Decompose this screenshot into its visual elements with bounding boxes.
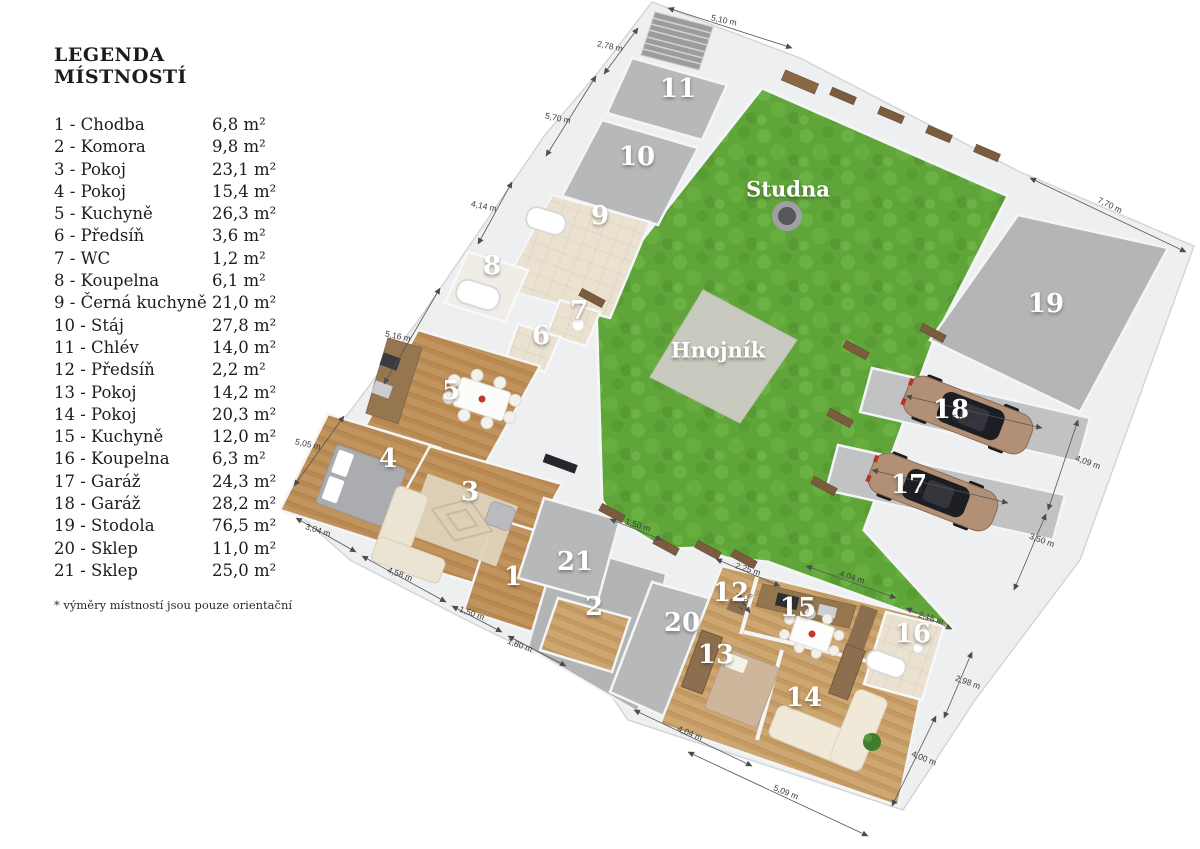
legend-item-area: 12,0 m²: [212, 426, 288, 448]
legend-item: 21 - Sklep25,0 m²: [54, 560, 288, 582]
legend-item-area: 27,8 m²: [212, 315, 288, 337]
legend-item-area: 25,0 m²: [212, 560, 288, 582]
legend-item: 9 - Černá kuchyně21,0 m²: [54, 292, 288, 314]
legend-item-area: 6,1 m²: [212, 270, 288, 292]
legend-footnote: * výměry místností jsou pouze orientační: [54, 598, 304, 612]
legend-item-name: 8 - Koupelna: [54, 270, 212, 292]
legend-item: 18 - Garáž28,2 m²: [54, 493, 288, 515]
well-icon: [775, 204, 799, 228]
legend-item: 15 - Kuchyně12,0 m²: [54, 426, 288, 448]
legend-item-area: 3,6 m²: [212, 225, 288, 247]
legend-item: 13 - Pokoj14,2 m²: [54, 382, 288, 404]
legend-item-area: 11,0 m²: [212, 538, 288, 560]
legend-item-name: 9 - Černá kuchyně: [54, 292, 212, 314]
legend-item-name: 7 - WC: [54, 248, 212, 270]
legend-item-name: 2 - Komora: [54, 136, 212, 158]
legend-item: 12 - Předsíň2,2 m²: [54, 359, 288, 381]
legend-item-area: 28,2 m²: [212, 493, 288, 515]
legend-item-name: 5 - Kuchyně: [54, 203, 212, 225]
legend-item-area: 24,3 m²: [212, 471, 288, 493]
legend-item-name: 14 - Pokoj: [54, 404, 212, 426]
legend-item: 8 - Koupelna6,1 m²: [54, 270, 288, 292]
legend-item: 11 - Chlév14,0 m²: [54, 337, 288, 359]
legend-item-name: 18 - Garáž: [54, 493, 212, 515]
legend: LEGENDA MÍSTNOSTÍ 1 - Chodba6,8 m²2 - Ko…: [54, 44, 304, 612]
legend-item-name: 6 - Předsíň: [54, 225, 212, 247]
legend-item: 20 - Sklep11,0 m²: [54, 538, 288, 560]
legend-item: 19 - Stodola76,5 m²: [54, 515, 288, 537]
legend-item: 14 - Pokoj20,3 m²: [54, 404, 288, 426]
legend-item: 3 - Pokoj23,1 m²: [54, 159, 288, 181]
legend-item: 2 - Komora9,8 m²: [54, 136, 288, 158]
legend-item-name: 19 - Stodola: [54, 515, 212, 537]
legend-item: 4 - Pokoj15,4 m²: [54, 181, 288, 203]
legend-item-name: 12 - Předsíň: [54, 359, 212, 381]
legend-item-name: 3 - Pokoj: [54, 159, 212, 181]
legend-item: 16 - Koupelna6,3 m²: [54, 448, 288, 470]
legend-item: 7 - WC1,2 m²: [54, 248, 288, 270]
legend-item-area: 15,4 m²: [212, 181, 288, 203]
legend-title: LEGENDA MÍSTNOSTÍ: [54, 44, 304, 88]
legend-item-area: 14,0 m²: [212, 337, 288, 359]
legend-item-area: 2,2 m²: [212, 359, 288, 381]
legend-item-name: 17 - Garáž: [54, 471, 212, 493]
legend-item: 1 - Chodba6,8 m²: [54, 114, 288, 136]
legend-item-area: 6,8 m²: [212, 114, 288, 136]
floorplan-page: LEGENDA MÍSTNOSTÍ 1 - Chodba6,8 m²2 - Ko…: [0, 0, 1200, 849]
legend-item: 17 - Garáž24,3 m²: [54, 471, 288, 493]
legend-item-name: 16 - Koupelna: [54, 448, 212, 470]
legend-item: 5 - Kuchyně26,3 m²: [54, 203, 288, 225]
legend-item-area: 9,8 m²: [212, 136, 288, 158]
legend-item-area: 14,2 m²: [212, 382, 288, 404]
legend-item-area: 23,1 m²: [212, 159, 288, 181]
legend-list: 1 - Chodba6,8 m²2 - Komora9,8 m²3 - Poko…: [54, 114, 304, 582]
legend-item: 6 - Předsíň3,6 m²: [54, 225, 288, 247]
legend-item-name: 21 - Sklep: [54, 560, 212, 582]
legend-item-name: 10 - Stáj: [54, 315, 212, 337]
legend-item-area: 21,0 m²: [212, 292, 288, 314]
legend-item-name: 13 - Pokoj: [54, 382, 212, 404]
legend-item: 10 - Stáj27,8 m²: [54, 315, 288, 337]
legend-item-area: 6,3 m²: [212, 448, 288, 470]
legend-item-area: 20,3 m²: [212, 404, 288, 426]
legend-item-name: 15 - Kuchyně: [54, 426, 212, 448]
legend-item-name: 20 - Sklep: [54, 538, 212, 560]
legend-item-name: 1 - Chodba: [54, 114, 212, 136]
legend-item-area: 76,5 m²: [212, 515, 288, 537]
legend-item-name: 4 - Pokoj: [54, 181, 212, 203]
legend-item-name: 11 - Chlév: [54, 337, 212, 359]
legend-item-area: 26,3 m²: [212, 203, 288, 225]
legend-item-area: 1,2 m²: [212, 248, 288, 270]
